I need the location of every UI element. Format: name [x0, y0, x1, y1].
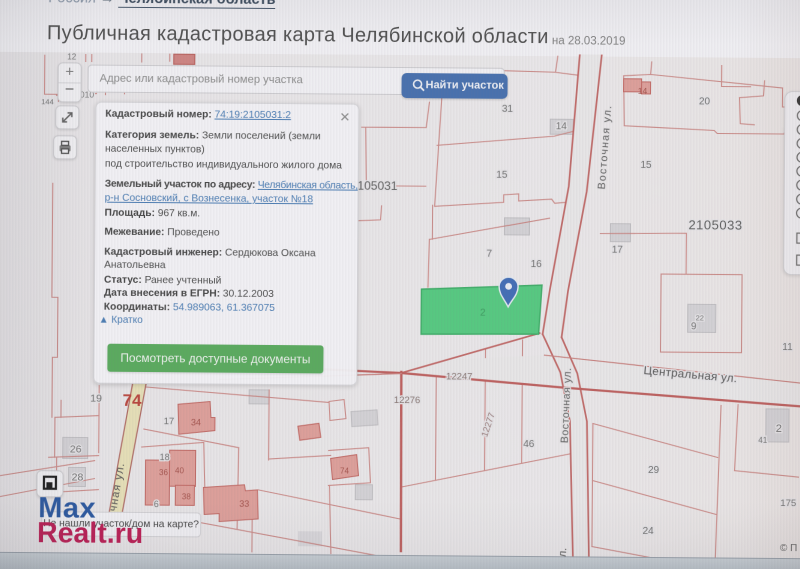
svg-text:144: 144 — [41, 97, 54, 106]
svg-text:16: 16 — [531, 259, 543, 270]
svg-text:14: 14 — [638, 86, 648, 96]
svg-text:36: 36 — [159, 468, 169, 477]
svg-text:28: 28 — [72, 471, 84, 483]
svg-text:15: 15 — [496, 170, 508, 181]
svg-text:20: 20 — [699, 96, 711, 107]
svg-text:40: 40 — [175, 466, 185, 475]
svg-text:18: 18 — [160, 452, 170, 462]
svg-text:24: 24 — [642, 526, 654, 537]
svg-text:41: 41 — [758, 436, 768, 445]
svg-text:17: 17 — [164, 416, 175, 427]
svg-text:46: 46 — [523, 439, 535, 450]
svg-text:Восточная ул.: Восточная ул. — [596, 104, 615, 190]
svg-text:6: 6 — [154, 499, 159, 509]
svg-text:74: 74 — [340, 467, 350, 476]
svg-text:29: 29 — [648, 465, 660, 476]
svg-text:14: 14 — [556, 121, 568, 132]
svg-text:7: 7 — [486, 249, 492, 260]
svg-text:2: 2 — [480, 308, 486, 319]
svg-text:12247: 12247 — [446, 371, 473, 382]
svg-text:12: 12 — [67, 52, 77, 61]
svg-text:33: 33 — [239, 499, 249, 509]
svg-text:17: 17 — [612, 245, 624, 256]
svg-text:11: 11 — [782, 342, 793, 353]
svg-text:15: 15 — [640, 160, 652, 171]
svg-text:2: 2 — [776, 423, 782, 435]
svg-text:9: 9 — [691, 321, 697, 332]
svg-text:12277: 12277 — [479, 411, 496, 438]
svg-text:22: 22 — [696, 313, 704, 322]
svg-text:34: 34 — [191, 417, 201, 427]
svg-text:19: 19 — [90, 393, 102, 405]
svg-text:31: 31 — [502, 104, 514, 115]
svg-text:175: 175 — [780, 498, 796, 509]
svg-text:26: 26 — [70, 443, 82, 455]
svg-text:2105033: 2105033 — [688, 217, 742, 232]
svg-text:12276: 12276 — [394, 395, 421, 406]
svg-text:38: 38 — [182, 492, 192, 501]
svg-text:74: 74 — [123, 391, 143, 410]
